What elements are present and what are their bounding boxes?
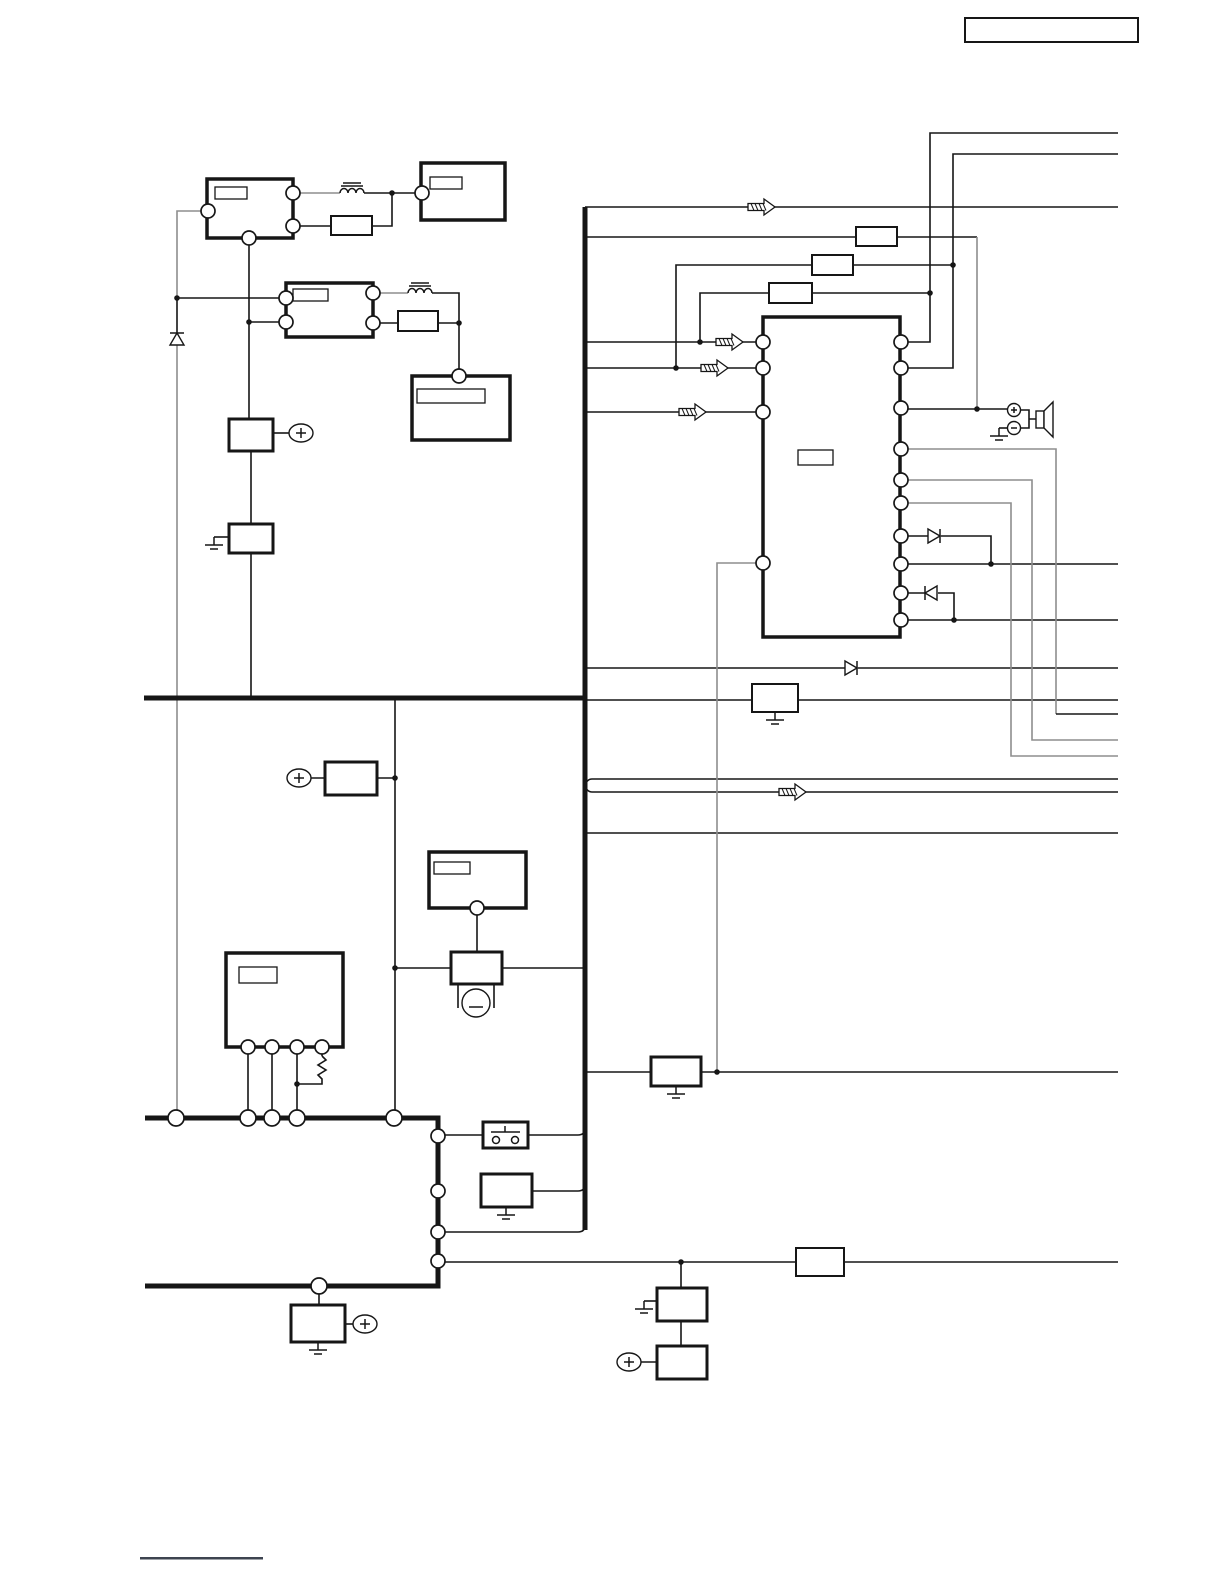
- diode-line668: [845, 661, 857, 675]
- label-box: [215, 187, 247, 199]
- inductor-2: [408, 283, 432, 293]
- bottom-left-box: [291, 1305, 345, 1354]
- flow-arrow-icon: [779, 784, 806, 800]
- ground-icon: [309, 1342, 327, 1354]
- speaker: [990, 402, 1053, 440]
- component-box-8: [429, 852, 526, 908]
- bottom-mid-box-2: [657, 1346, 707, 1379]
- diode-pin536: [928, 529, 940, 543]
- ground-icon: [766, 712, 784, 724]
- component-box-6: [205, 524, 273, 553]
- inductor-1: [340, 183, 364, 193]
- grounded-box-line700: [752, 684, 798, 724]
- ic-main: [763, 317, 900, 637]
- label-box: [430, 177, 462, 189]
- schematic-page: [0, 0, 1224, 1584]
- component-box-5: [229, 419, 273, 451]
- label-box: [239, 967, 277, 983]
- component-box-4: [412, 376, 510, 440]
- component-box-2: [286, 283, 373, 337]
- plus-source-2: [287, 769, 311, 787]
- push-switch-box: [483, 1122, 528, 1148]
- component-box-9: [226, 953, 343, 1047]
- diode-pin593: [925, 586, 937, 600]
- ground-icon: [205, 537, 223, 549]
- flow-arrow-icon: [716, 334, 743, 350]
- component-box-7: [325, 762, 377, 795]
- plus-source-1: [289, 424, 313, 442]
- label-box: [798, 450, 833, 465]
- footer-rule: [140, 1557, 263, 1560]
- ground-icon: [497, 1207, 515, 1219]
- bottom-mid-box-1: [635, 1288, 707, 1321]
- label-box: [434, 862, 470, 874]
- title-box: [965, 18, 1138, 42]
- flow-arrow-icon: [748, 199, 775, 215]
- flow-arrow-icon: [701, 360, 728, 376]
- component-box-1: [207, 179, 293, 238]
- ground-icon: [667, 1086, 685, 1098]
- ground-icon: [635, 1301, 653, 1313]
- ground-icon: [990, 428, 1008, 440]
- component-box-3: [421, 163, 505, 220]
- label-box: [417, 389, 485, 403]
- label-box: [293, 289, 328, 301]
- flow-arrow-icon: [679, 404, 706, 420]
- schematic-canvas: [0, 0, 1224, 1584]
- grounded-box-busrow: [481, 1174, 532, 1219]
- motor-block: [451, 952, 502, 1017]
- diode-up: [170, 333, 184, 345]
- plus-source-3: [353, 1315, 377, 1333]
- grounded-box-line1072: [651, 1057, 701, 1098]
- minus-motor-circle: [462, 989, 490, 1017]
- plus-source-4: [617, 1353, 641, 1371]
